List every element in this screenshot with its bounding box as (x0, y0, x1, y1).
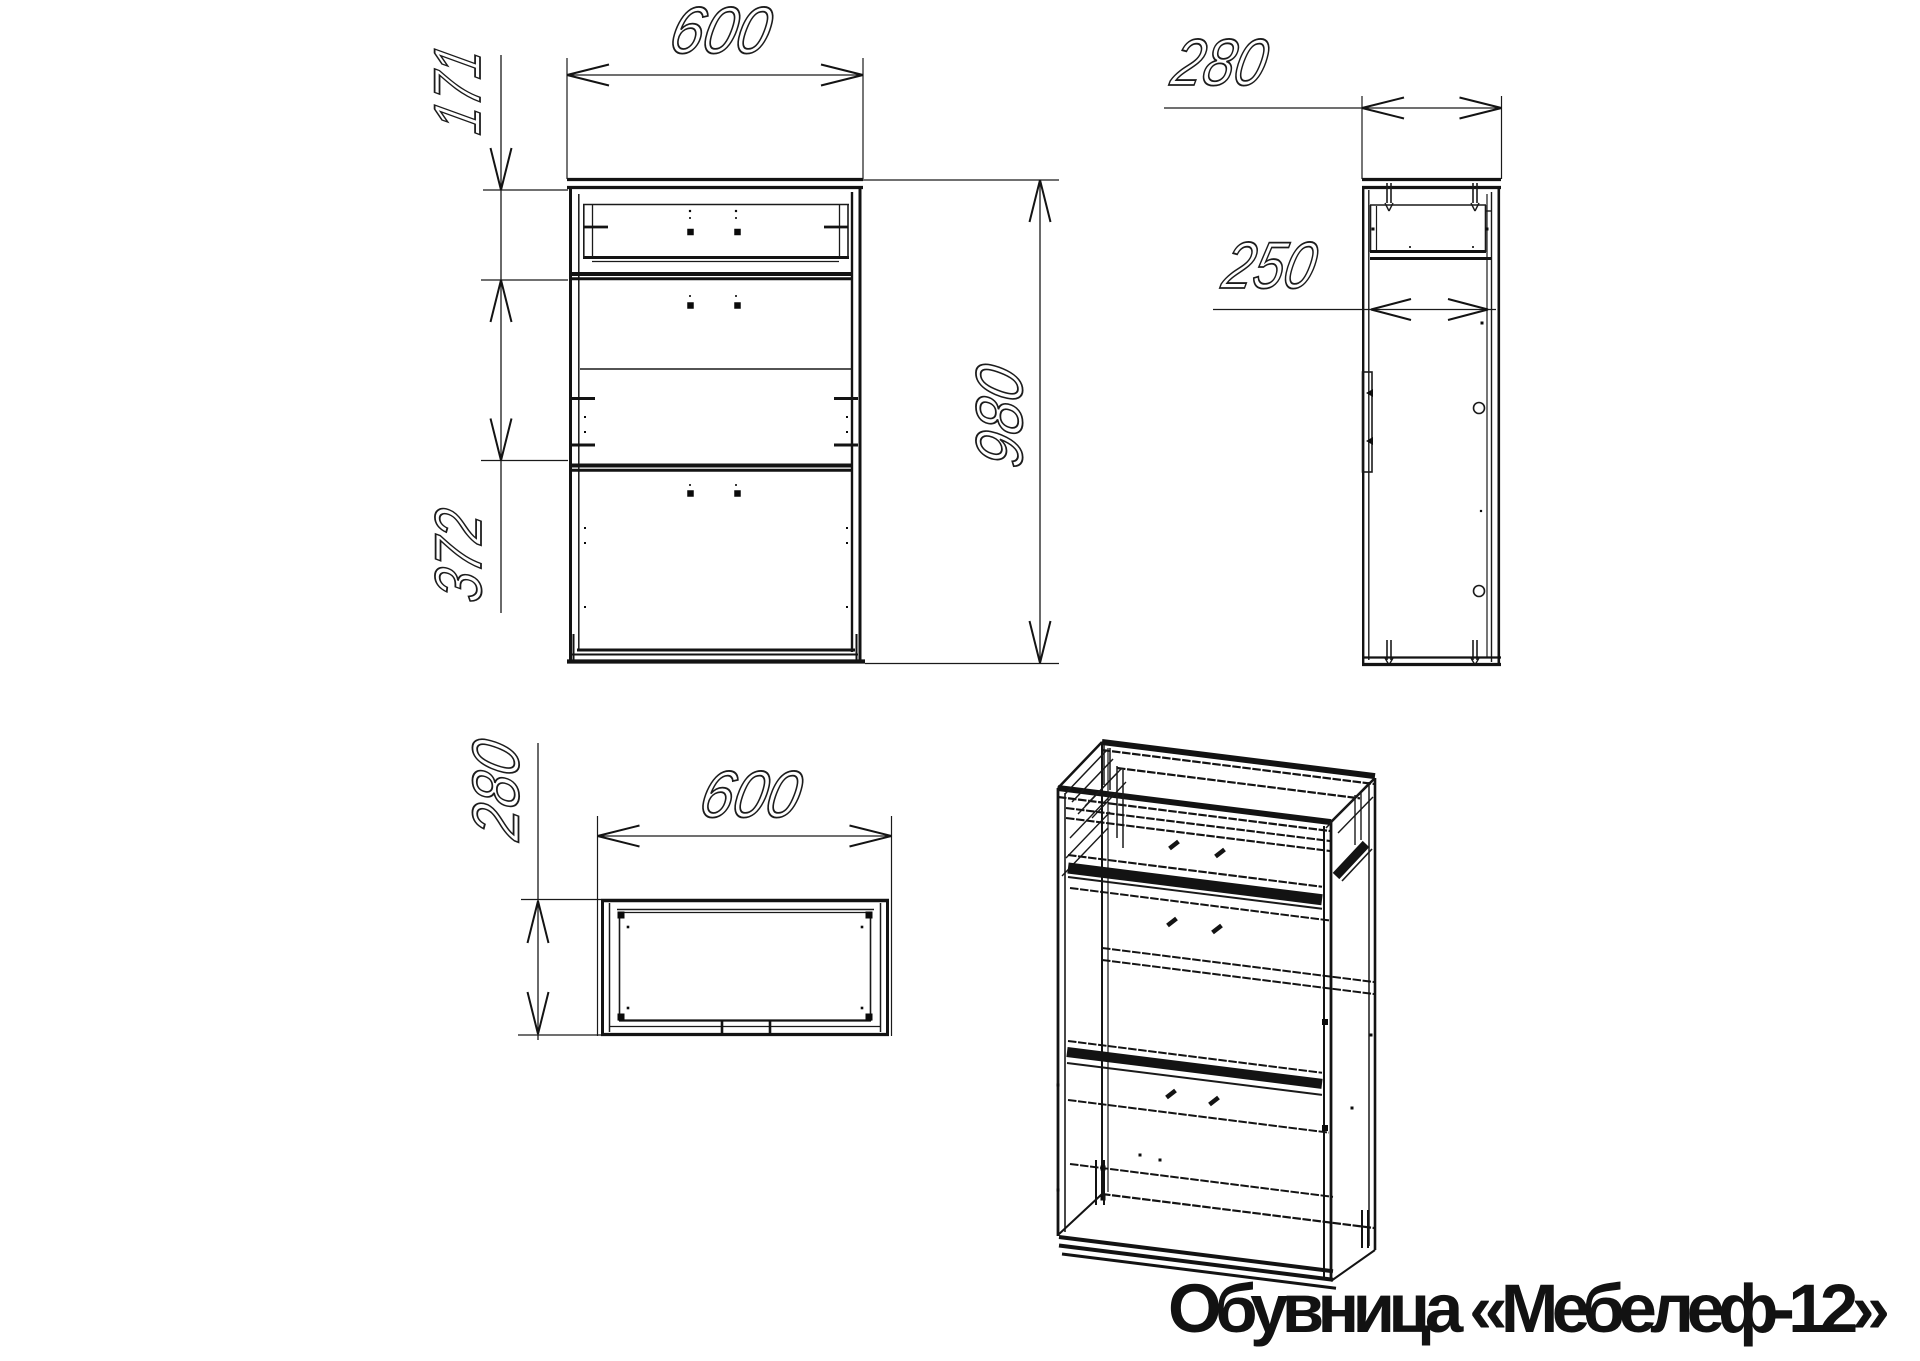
svg-text:372: 372 (423, 503, 496, 608)
svg-text:Обувница «Мебелеф-12»: Обувница «Мебелеф-12» (1168, 1270, 1890, 1347)
svg-text:280: 280 (1165, 27, 1274, 100)
svg-text:250: 250 (1216, 230, 1323, 303)
svg-text:171: 171 (422, 40, 495, 140)
svg-text:600: 600 (694, 759, 809, 832)
svg-text:980: 980 (964, 359, 1037, 474)
svg-text:280: 280 (460, 734, 533, 846)
svg-text:600: 600 (664, 0, 779, 68)
